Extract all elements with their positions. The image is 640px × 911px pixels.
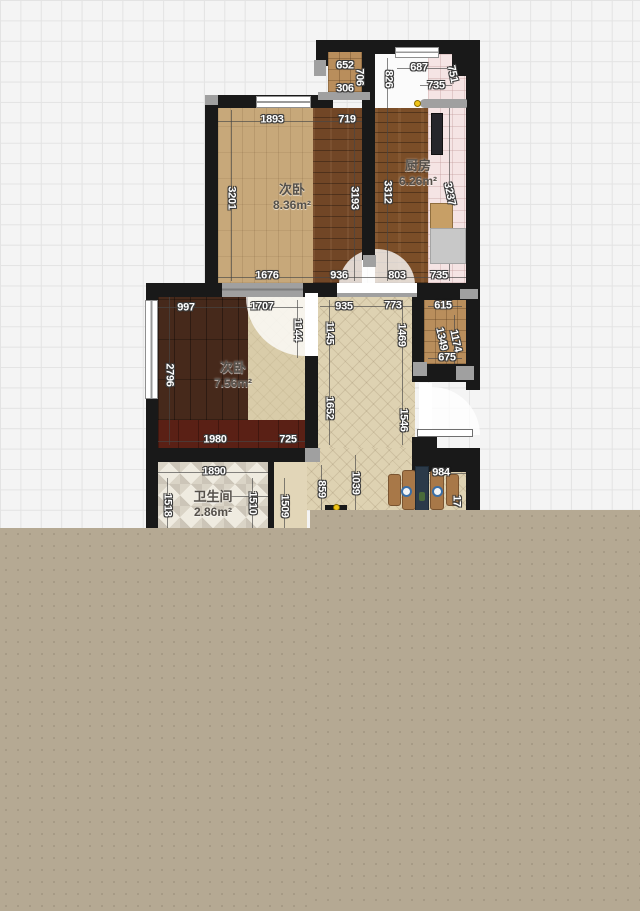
door-opening-entrance[interactable] <box>419 383 432 433</box>
floorplan-canvas: 6523067068266877517351893719320131933312… <box>0 0 640 911</box>
dim-line <box>420 85 452 86</box>
wall-cap <box>314 60 326 76</box>
kitchen-appliance[interactable] <box>431 113 443 155</box>
dim-line <box>355 455 356 510</box>
plate <box>432 486 443 497</box>
floor-duct-top[interactable] <box>328 52 362 92</box>
light-marker[interactable] <box>414 100 421 107</box>
wall-cap <box>305 448 320 462</box>
wall[interactable] <box>466 448 480 510</box>
wall-cap <box>460 289 478 299</box>
window-bedroom-top[interactable] <box>256 96 311 108</box>
floor-hallway[interactable] <box>318 297 415 448</box>
dim-line <box>231 110 232 281</box>
wall-cap <box>363 255 376 267</box>
dim-line <box>321 465 322 510</box>
dim-line <box>297 300 298 358</box>
dim-line <box>158 441 305 442</box>
door-swing-entrance[interactable] <box>432 387 480 435</box>
wall-cap <box>318 92 370 100</box>
dim-line <box>217 121 362 122</box>
wall-cap <box>456 366 474 380</box>
dim-line <box>167 478 168 528</box>
dim-line <box>169 297 170 445</box>
kitchen-lintel <box>420 99 467 108</box>
door-opening-kitchen[interactable] <box>337 283 417 293</box>
dining-chair[interactable] <box>446 474 459 506</box>
door-opening-bedroom-mid[interactable] <box>305 293 318 356</box>
dim-line <box>354 110 355 281</box>
kitchen-counter[interactable] <box>430 228 466 264</box>
floor-bath-nook[interactable] <box>274 462 307 528</box>
dim-line <box>217 277 466 278</box>
wall[interactable] <box>146 448 307 462</box>
tan-cover-right <box>310 510 640 911</box>
dim-line <box>158 307 303 308</box>
table-decor <box>419 492 425 501</box>
dim-line <box>428 358 462 359</box>
dim-line <box>329 300 330 445</box>
wall[interactable] <box>146 399 158 528</box>
wall[interactable] <box>452 54 466 76</box>
kitchen-cabinet[interactable] <box>430 203 453 229</box>
dim-line <box>231 496 269 497</box>
dim-line <box>428 306 462 307</box>
wall-cap <box>413 362 427 376</box>
wall[interactable] <box>466 40 480 290</box>
window-bedroom-mid[interactable] <box>145 300 158 399</box>
entrance-door-leaf[interactable] <box>417 429 473 437</box>
floor-bedroom-mid-dark[interactable] <box>158 297 248 420</box>
dim-line <box>158 472 268 473</box>
floor-bedroom-mid-rug[interactable] <box>158 420 305 448</box>
dim-line <box>387 58 388 281</box>
dim-line <box>454 315 455 365</box>
sliding-partition[interactable] <box>222 283 303 297</box>
wall[interactable] <box>305 356 318 448</box>
wall[interactable] <box>268 462 274 528</box>
wall[interactable] <box>146 283 158 300</box>
dining-chair[interactable] <box>388 474 401 506</box>
dining-table[interactable] <box>415 466 429 516</box>
dim-line <box>284 478 285 528</box>
floor-duct-right[interactable] <box>424 300 466 364</box>
dim-line <box>397 68 447 69</box>
wall-cap <box>205 95 218 105</box>
dim-line <box>320 306 415 307</box>
plate <box>401 486 412 497</box>
wall[interactable] <box>205 95 218 283</box>
dim-line <box>252 478 253 528</box>
window-kitchen[interactable] <box>395 47 439 58</box>
wall[interactable] <box>362 40 375 260</box>
wall[interactable] <box>206 283 222 297</box>
floor-bedroom-top-light[interactable] <box>218 108 313 283</box>
dim-line <box>402 300 403 445</box>
tan-cover-left <box>0 528 310 911</box>
